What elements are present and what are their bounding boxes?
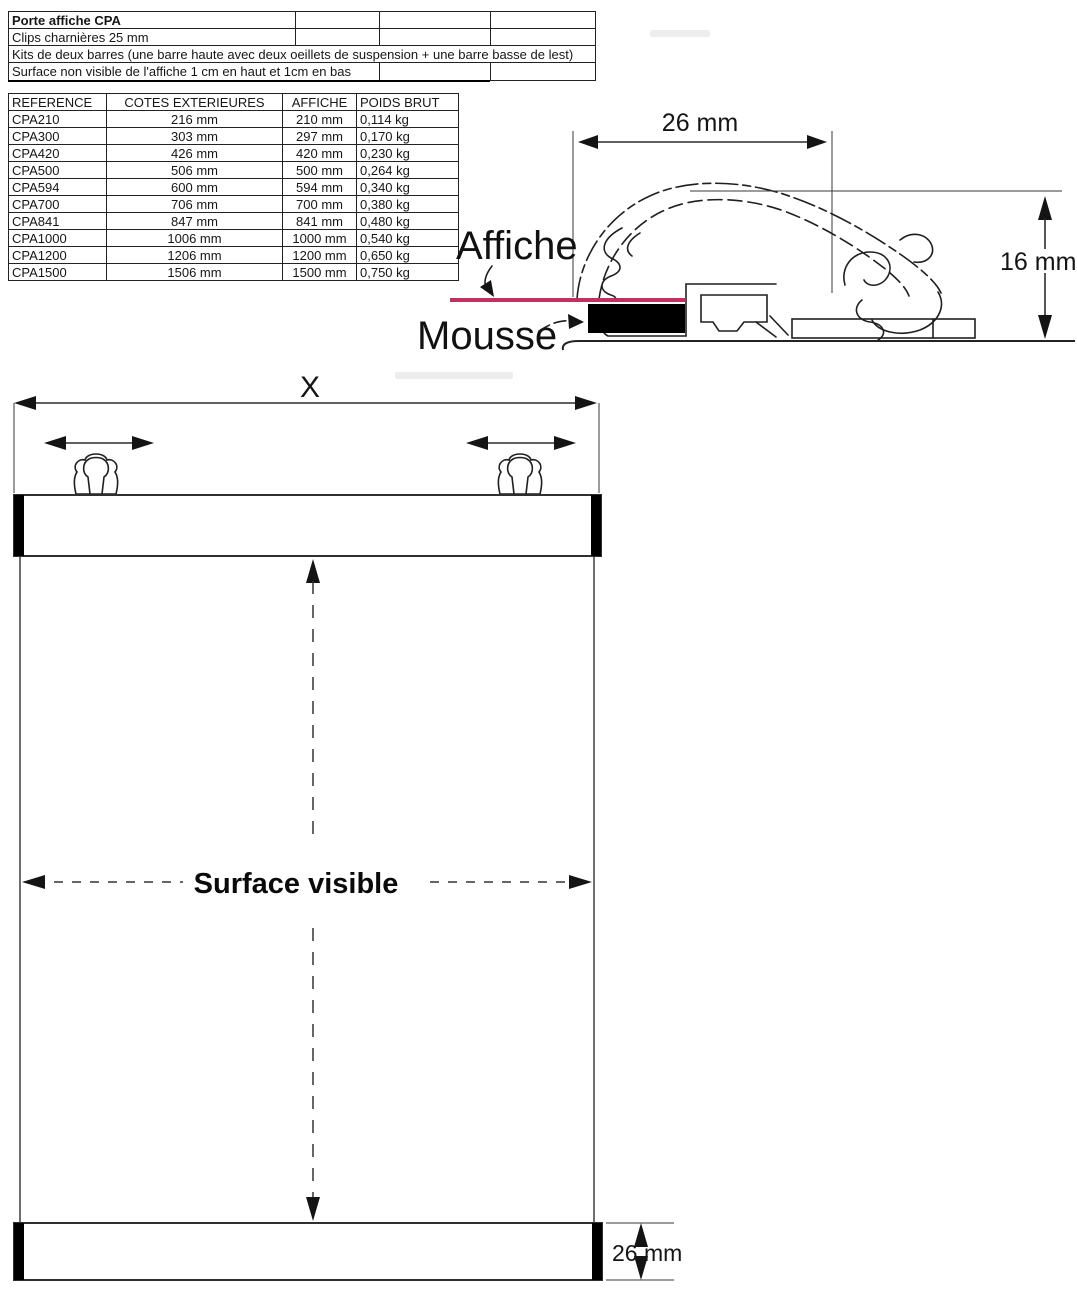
slide-range-arrow-right (466, 436, 576, 450)
bottom-bar-endcap-right (592, 1223, 602, 1280)
mousse-arrowhead (568, 314, 584, 329)
arrowhead-right (807, 135, 827, 149)
poster-sheet (450, 298, 686, 302)
technical-drawing: 26 mm (0, 0, 1077, 1293)
arrowhead-down (306, 1197, 320, 1221)
arrowhead-up (1038, 196, 1052, 220)
arrowhead-right (575, 396, 597, 410)
suspension-eyelet-left (74, 454, 118, 494)
base-wedge (756, 316, 788, 337)
bar-height-dimension-label: 26 mm (612, 1240, 682, 1266)
base-pocket (701, 295, 767, 331)
bottom-bar-endcap-left (14, 1223, 24, 1280)
arrowhead-left (22, 875, 45, 889)
clip-left-lip (602, 228, 622, 300)
profile-height-dimension-label: 16 mm (1000, 248, 1076, 276)
slide-range-arrow-left (44, 436, 154, 450)
clip-outer-arc (577, 183, 941, 299)
suspension-eyelet-right (498, 454, 542, 494)
foam-strip (588, 304, 685, 333)
top-bar-endcap-left (14, 495, 24, 556)
hinge-hook (856, 300, 883, 340)
arrowhead-down (1038, 315, 1052, 339)
arrowhead-up (306, 559, 320, 583)
baseline (563, 341, 1075, 350)
hinge-scroll (844, 252, 890, 285)
datasheet-page: Porte affiche CPA Clips charnières 25 mm… (0, 0, 1077, 1293)
front-view-diagram: X Surface visible (14, 371, 682, 1280)
affiche-arrowhead (480, 280, 494, 297)
surface-visible-label: Surface visible (194, 868, 399, 900)
cross-section-diagram: 26 mm (417, 109, 1076, 358)
bottom-bar (14, 1223, 602, 1280)
top-bar-endcap-right (591, 495, 601, 556)
arrowhead-left (14, 396, 36, 410)
mousse-label: Mousse (417, 314, 557, 358)
affiche-label: Affiche (456, 224, 578, 268)
overall-width-label: X (300, 371, 320, 404)
arrowhead-right (569, 875, 592, 889)
profile-width-dimension-label: 26 mm (662, 109, 738, 137)
base-channel (686, 284, 776, 336)
arrowhead-left (578, 135, 598, 149)
top-bar (14, 495, 601, 556)
